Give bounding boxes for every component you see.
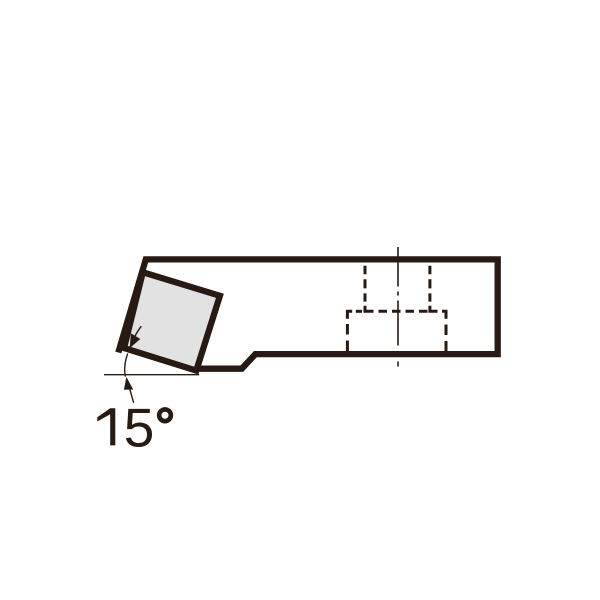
svg-text:5: 5 bbox=[124, 397, 155, 459]
